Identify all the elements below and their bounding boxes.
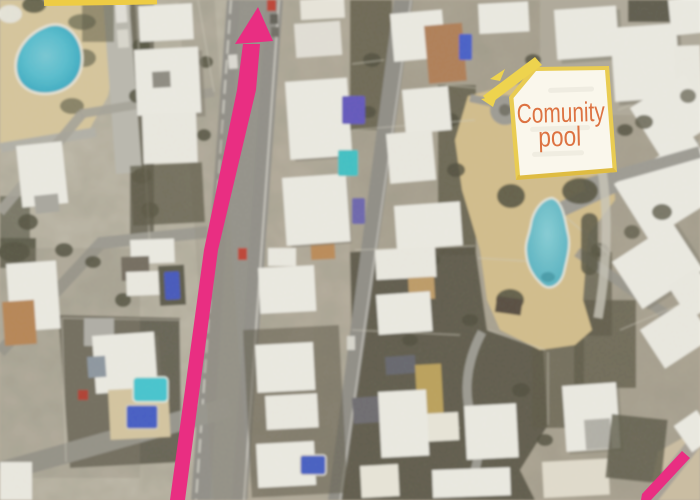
svg-text:pool: pool [538, 120, 582, 152]
